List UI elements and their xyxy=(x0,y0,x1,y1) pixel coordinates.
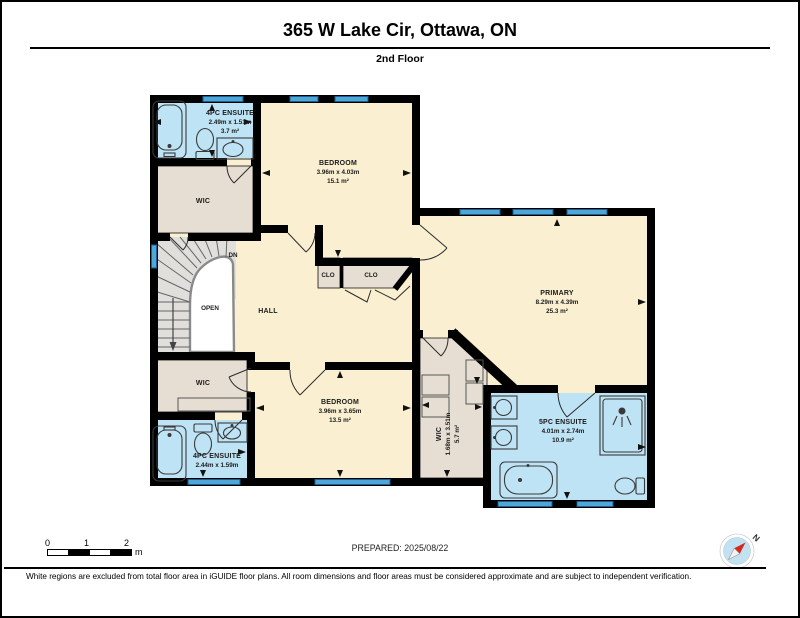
svg-text:4.01m x 2.74m: 4.01m x 2.74m xyxy=(542,428,585,435)
svg-text:3.96m x 4.03m: 3.96m x 4.03m xyxy=(317,169,360,176)
svg-text:BEDROOM: BEDROOM xyxy=(321,399,359,406)
svg-text:2.49m x 1.51m: 2.49m x 1.51m xyxy=(209,119,252,126)
svg-text:8.29m x 4.39m: 8.29m x 4.39m xyxy=(536,299,579,306)
floorplan-drawing: 4PC ENSUITE 2.49m x 1.51m 3.7 m² BEDROOM… xyxy=(130,85,670,525)
svg-text:5PC ENSUITE: 5PC ENSUITE xyxy=(539,419,587,426)
floor-label: 2nd Floor xyxy=(2,53,798,65)
label-hall: HALL xyxy=(258,308,278,315)
svg-text:4PC ENSUITE: 4PC ENSUITE xyxy=(206,110,254,117)
svg-text:2.44m x 1.59m: 2.44m x 1.59m xyxy=(196,462,239,469)
svg-text:13.5 m²: 13.5 m² xyxy=(329,417,351,424)
svg-text:25.3 m²: 25.3 m² xyxy=(546,308,568,315)
svg-text:15.1 m²: 15.1 m² xyxy=(327,178,349,185)
footer-divider xyxy=(4,567,766,569)
svg-text:5.7 m²: 5.7 m² xyxy=(454,425,461,443)
label-stairs-open: OPEN xyxy=(201,305,219,312)
floorplan-page: 365 W Lake Cir, Ottawa, ON 2nd Floor xyxy=(0,0,800,618)
svg-text:4PC ENSUITE: 4PC ENSUITE xyxy=(193,453,241,460)
label-stairs-dn: DN xyxy=(228,252,238,259)
svg-text:WIC: WIC xyxy=(436,427,443,441)
page-title: 365 W Lake Cir, Ottawa, ON xyxy=(2,20,798,41)
disclaimer-text: White regions are excluded from total fl… xyxy=(26,572,788,581)
svg-text:1.68m x 3.51m: 1.68m x 3.51m xyxy=(445,412,452,455)
title-divider xyxy=(30,47,770,49)
svg-text:10.9 m²: 10.9 m² xyxy=(552,437,574,444)
svg-text:3.7 m²: 3.7 m² xyxy=(221,128,239,135)
prepared-date: PREPARED: 2025/08/22 xyxy=(2,543,798,553)
label-clo-left: CLO xyxy=(321,272,334,279)
svg-text:BEDROOM: BEDROOM xyxy=(319,160,357,167)
label-wic-mid: WIC xyxy=(196,380,210,387)
svg-text:PRIMARY: PRIMARY xyxy=(540,290,574,297)
svg-text:3.96m x 3.65m: 3.96m x 3.65m xyxy=(319,408,362,415)
label-wic-top: WIC xyxy=(196,198,210,205)
compass-north-label: N xyxy=(751,532,762,544)
label-clo-right: CLO xyxy=(364,272,377,279)
